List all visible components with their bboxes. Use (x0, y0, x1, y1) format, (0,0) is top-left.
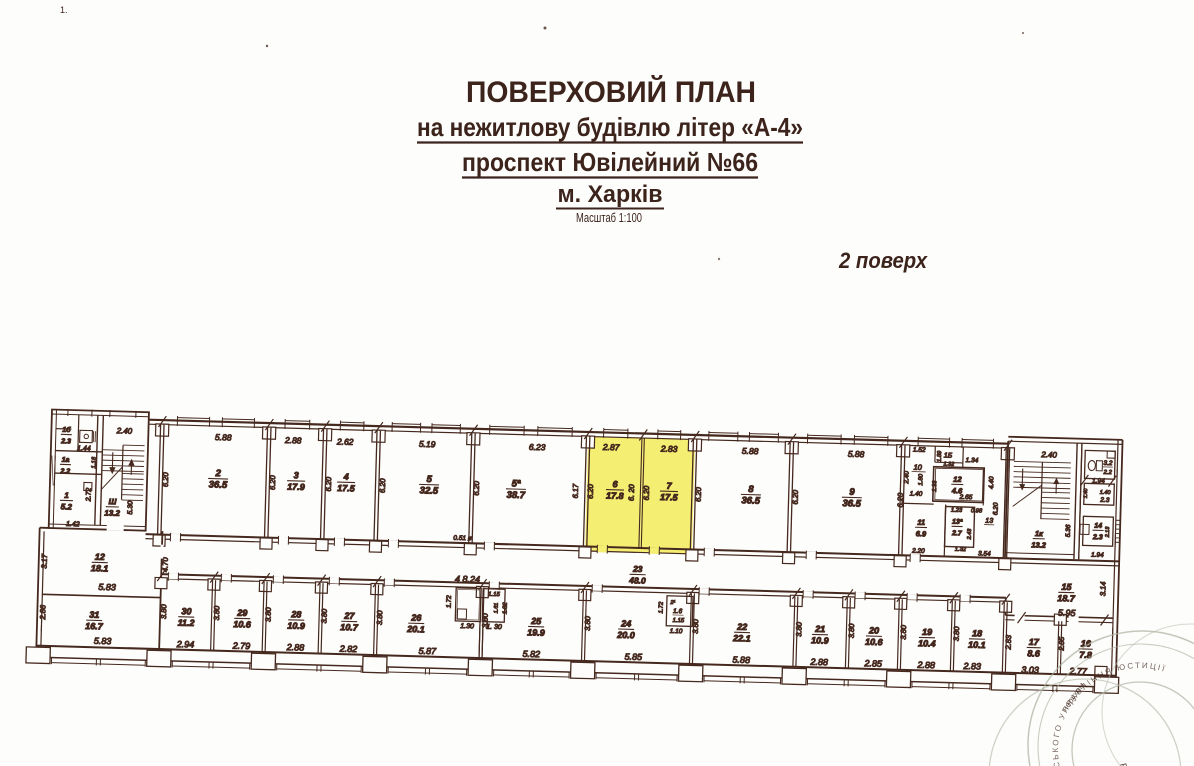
svg-text:1.33: 1.33 (932, 480, 938, 492)
svg-text:проспект Ювілейний №66: проспект Ювілейний №66 (462, 147, 758, 177)
svg-text:Ш: Ш (108, 497, 116, 506)
svg-text:6.20: 6.20 (642, 485, 651, 501)
svg-text:2.7: 2.7 (951, 530, 963, 537)
svg-text:1.94: 1.94 (1091, 552, 1104, 559)
svg-text:2.82: 2.82 (339, 644, 358, 655)
svg-text:2.85: 2.85 (863, 658, 883, 669)
svg-text:2.65: 2.65 (958, 494, 972, 501)
svg-text:2.88: 2.88 (809, 657, 828, 668)
svg-text:26: 26 (410, 613, 422, 623)
svg-text:18: 18 (972, 628, 982, 638)
svg-text:17.8: 17.8 (606, 491, 624, 501)
svg-text:36.5: 36.5 (209, 479, 229, 491)
svg-text:29: 29 (236, 608, 247, 618)
svg-text:1.89: 1.89 (937, 450, 943, 462)
svg-text:1.34: 1.34 (966, 457, 979, 464)
svg-text:5.19: 5.19 (419, 439, 436, 449)
svg-text:2.62: 2.62 (336, 436, 354, 446)
svg-text:3.80: 3.80 (212, 605, 221, 621)
svg-text:1.32: 1.32 (502, 602, 508, 615)
svg-text:15: 15 (1061, 582, 1072, 592)
svg-text:5.88: 5.88 (742, 446, 759, 456)
svg-text:1.30: 1.30 (460, 623, 474, 630)
svg-text:1.6: 1.6 (673, 608, 683, 615)
svg-text:2.3: 2.3 (1099, 497, 1110, 504)
svg-text:3.80: 3.80 (952, 626, 961, 642)
svg-text:2.20: 2.20 (911, 548, 925, 555)
svg-text:Реєстраційного май: Реєстраційного май (1118, 762, 1145, 766)
svg-text:1.15: 1.15 (488, 592, 501, 598)
svg-text:1.40: 1.40 (910, 490, 923, 497)
svg-text:2.3: 2.3 (60, 438, 71, 445)
svg-text:28: 28 (290, 609, 301, 619)
svg-text:8: 8 (748, 484, 754, 495)
svg-text:1.32: 1.32 (955, 547, 967, 553)
svg-text:1.15: 1.15 (672, 618, 685, 624)
svg-text:4.40: 4.40 (988, 476, 995, 489)
svg-text:2.94: 2.94 (176, 639, 195, 650)
svg-text:3.2: 3.2 (1103, 460, 1113, 467)
svg-text:1.72: 1.72 (659, 601, 665, 614)
svg-text:25: 25 (530, 616, 542, 626)
svg-text:13.2: 13.2 (1031, 540, 1047, 549)
svg-text:6.20: 6.20 (161, 471, 170, 487)
svg-text:27: 27 (343, 611, 355, 621)
svg-text:20.0: 20.0 (616, 630, 635, 641)
svg-text:2¹: 2¹ (669, 600, 675, 606)
svg-text:5.88: 5.88 (732, 655, 750, 665)
svg-text:1. 30: 1. 30 (486, 624, 502, 631)
svg-text:7.8: 7.8 (1079, 650, 1092, 660)
svg-text:5.36: 5.36 (1065, 524, 1072, 537)
svg-text:2.87: 2.87 (602, 442, 620, 452)
svg-text:16.7: 16.7 (85, 621, 104, 632)
svg-text:2.83: 2.83 (962, 661, 981, 672)
svg-text:1.23: 1.23 (951, 508, 963, 514)
svg-text:2.40: 2.40 (903, 471, 910, 485)
svg-text:10.1: 10.1 (968, 640, 986, 650)
svg-text:18.1: 18.1 (91, 563, 109, 573)
svg-text:5.83: 5.83 (98, 582, 116, 592)
svg-text:3.54: 3.54 (978, 550, 991, 557)
svg-text:1.72: 1.72 (446, 595, 453, 608)
svg-text:2.40: 2.40 (116, 426, 133, 435)
svg-text:10.6: 10.6 (233, 619, 252, 630)
svg-text:2.83: 2.83 (1004, 634, 1013, 651)
svg-text:1.44: 1.44 (77, 445, 91, 452)
svg-text:6.20: 6.20 (992, 502, 999, 515)
svg-text:5ª: 5ª (512, 478, 522, 489)
svg-text:6.20: 6.20 (896, 492, 905, 508)
svg-text:5.30: 5.30 (127, 501, 134, 515)
svg-text:10.7: 10.7 (340, 622, 359, 633)
svg-text:2.83: 2.83 (660, 443, 678, 453)
svg-text:18.7: 18.7 (1057, 593, 1076, 604)
svg-text:2 поверх: 2 поверх (838, 248, 928, 273)
svg-text:2.40: 2.40 (1040, 450, 1057, 459)
svg-text:36.5: 36.5 (741, 495, 761, 507)
svg-text:3.17: 3.17 (40, 553, 49, 569)
svg-text:21: 21 (814, 624, 825, 634)
svg-text:6.20: 6.20 (472, 480, 481, 496)
svg-text:6.20: 6.20 (694, 486, 703, 502)
svg-text:13: 13 (985, 518, 993, 525)
svg-text:1.80: 1.80 (918, 473, 924, 486)
svg-text:17.5: 17.5 (660, 492, 679, 503)
svg-text:20.1: 20.1 (406, 624, 425, 635)
svg-text:2.13: 2.13 (1105, 526, 1111, 539)
svg-text:6.20: 6.20 (378, 478, 387, 494)
svg-text:17.9: 17.9 (287, 482, 305, 492)
svg-text:1б: 1б (62, 426, 71, 434)
svg-text:5.85: 5.85 (624, 652, 643, 663)
svg-text:5.88: 5.88 (848, 449, 865, 459)
svg-text:1.52: 1.52 (913, 447, 926, 454)
svg-text:22.1: 22.1 (732, 633, 751, 644)
svg-text:1.40: 1.40 (1083, 488, 1089, 498)
svg-text:38.7: 38.7 (506, 490, 526, 502)
svg-text:48.0: 48.0 (628, 575, 646, 585)
svg-text:6.9: 6.9 (916, 529, 928, 538)
svg-text:6.17: 6.17 (571, 483, 580, 499)
svg-text:1к: 1к (1035, 529, 1044, 538)
svg-text:1.42: 1.42 (66, 521, 80, 528)
svg-text:6.20: 6.20 (268, 474, 277, 490)
svg-text:2.43: 2.43 (967, 528, 973, 541)
svg-text:Масштаб 1:100: Масштаб 1:100 (576, 210, 642, 225)
svg-text:19: 19 (922, 627, 932, 637)
svg-text:17: 17 (1029, 637, 1040, 647)
svg-text:5.83: 5.83 (94, 636, 112, 646)
svg-text:3.14: 3.14 (1098, 581, 1107, 596)
svg-text:22: 22 (736, 622, 747, 632)
svg-text:6.20: 6.20 (324, 476, 333, 492)
svg-text:2.2: 2.2 (1102, 470, 1112, 476)
svg-text:1.10: 1.10 (670, 628, 683, 635)
svg-text:12: 12 (953, 475, 962, 484)
svg-text:1.61: 1.61 (493, 603, 499, 614)
svg-text:31: 31 (89, 610, 99, 620)
svg-text:10.9: 10.9 (287, 621, 305, 631)
svg-text:11: 11 (917, 518, 925, 527)
svg-text:3.80: 3.80 (263, 606, 272, 622)
svg-text:3.80: 3.80 (847, 623, 856, 639)
svg-text:на нежитлову будівлю літер «А-: на нежитлову будівлю літер «А-4» (417, 112, 803, 142)
svg-text:30: 30 (181, 606, 191, 616)
svg-text:5.2: 5.2 (61, 502, 73, 511)
svg-text:9: 9 (849, 487, 855, 498)
svg-text:10: 10 (913, 463, 922, 472)
svg-text:14: 14 (1094, 523, 1102, 530)
svg-text:3.80: 3.80 (159, 603, 168, 619)
svg-text:10.9: 10.9 (811, 635, 829, 645)
svg-text:3.80: 3.80 (375, 609, 384, 625)
svg-text:6.23: 6.23 (529, 442, 546, 452)
svg-text:20: 20 (868, 625, 879, 635)
svg-text:2.86: 2.86 (38, 604, 47, 621)
svg-text:6. 20: 6. 20 (627, 483, 636, 501)
svg-text:4: 4 (343, 472, 349, 482)
svg-text:2.2: 2.2 (59, 468, 70, 475)
svg-text:5: 5 (426, 474, 432, 485)
svg-text:24: 24 (620, 618, 631, 628)
svg-text:3.80: 3.80 (794, 621, 803, 637)
svg-text:23: 23 (632, 564, 643, 574)
svg-text:11.2: 11.2 (178, 618, 195, 628)
svg-text:5.88: 5.88 (215, 432, 232, 442)
svg-text:0.51 ø: 0.51 ø (453, 535, 472, 543)
svg-text:3.80: 3.80 (319, 608, 328, 624)
svg-text:ПОВЕРХОВИЙ ПЛАН: ПОВЕРХОВИЙ ПЛАН (466, 75, 756, 109)
svg-text:8.6: 8.6 (1027, 648, 1041, 658)
svg-text:32.5: 32.5 (419, 485, 439, 497)
svg-text:2.88: 2.88 (916, 660, 935, 671)
svg-text:10.4: 10.4 (918, 638, 936, 648)
svg-text:1: 1 (64, 491, 69, 500)
svg-text:3: 3 (294, 470, 299, 480)
svg-text:5.95: 5.95 (1058, 608, 1077, 619)
svg-text:1а: 1а (62, 457, 70, 464)
svg-text:13ª: 13ª (952, 519, 963, 526)
svg-text:12: 12 (95, 552, 105, 562)
svg-text:1.: 1. (60, 5, 68, 15)
svg-text:3.80: 3.80 (899, 624, 908, 640)
svg-text:1.40: 1.40 (1100, 490, 1112, 496)
svg-text:3.80: 3.80 (583, 615, 592, 631)
svg-text:6.20: 6.20 (586, 483, 595, 499)
svg-text:2.85: 2.85 (1059, 637, 1066, 652)
svg-text:6.20: 6.20 (791, 489, 800, 505)
svg-text:1Б: 1Б (944, 452, 953, 459)
svg-text:5.87: 5.87 (418, 646, 437, 657)
svg-text:5.82: 5.82 (522, 649, 540, 659)
svg-text:2.79: 2.79 (232, 641, 251, 652)
svg-text:19.9: 19.9 (527, 627, 545, 637)
svg-text:0.98: 0.98 (971, 508, 983, 514)
svg-text:2.3: 2.3 (1092, 534, 1103, 541)
svg-text:17.5: 17.5 (337, 483, 356, 494)
svg-text:2.88: 2.88 (284, 435, 302, 445)
svg-text:2: 2 (214, 468, 221, 479)
svg-text:2.88: 2.88 (286, 642, 305, 653)
svg-text:13.2: 13.2 (104, 509, 120, 518)
svg-text:36.5: 36.5 (842, 498, 862, 510)
svg-text:10.6: 10.6 (865, 637, 884, 648)
svg-text:м. Харків: м. Харків (558, 181, 663, 208)
